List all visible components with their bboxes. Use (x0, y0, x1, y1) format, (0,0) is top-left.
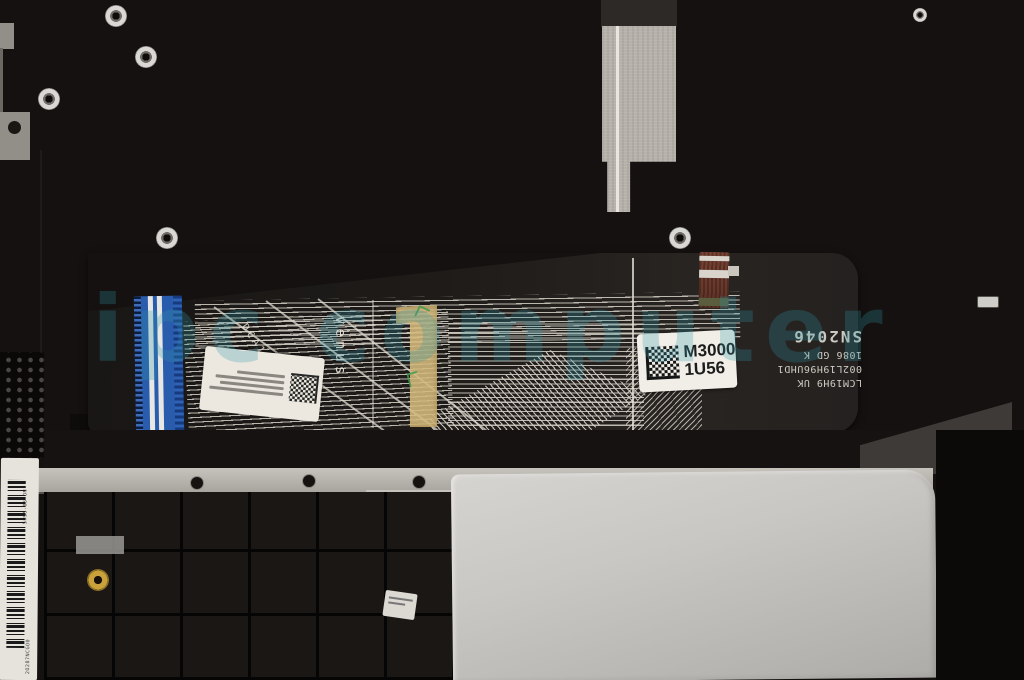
print-line: 1086 GD K (803, 349, 862, 360)
tape-shadow (601, 0, 677, 27)
ffc-white-band (699, 270, 729, 279)
rivet-eyelet-small (913, 8, 927, 22)
part-number-label: M3000 1U56 (637, 329, 738, 392)
touchpad-plate (451, 469, 937, 680)
bracket-rivet (412, 475, 426, 489)
serial-barcode-label: 5H95-05 ON 2O287NCGO0 (0, 458, 39, 680)
micro-label-textlines (205, 365, 287, 400)
part-revision: 1U56 (684, 358, 737, 379)
tiny-sticker (382, 590, 417, 620)
rivet-eyelet (156, 227, 178, 249)
rivet-eyelet (135, 46, 157, 68)
print-line: 002L19H96UHD1 (777, 363, 862, 374)
ffc-side-tab (728, 266, 739, 276)
edge-highlight (0, 48, 3, 114)
datamatrix-code-small (288, 373, 319, 404)
metal-clip (977, 296, 999, 308)
connector-stripe (157, 296, 164, 434)
ffc-connector-blue (134, 296, 184, 435)
datamatrix-code (645, 345, 680, 380)
barcode (6, 480, 25, 648)
product-photo: venus DCA1-2 LCM19H9 UK 002L19H96UHD1 10… (0, 0, 1024, 680)
foil-tape (602, 26, 676, 212)
connector-stripe (148, 296, 155, 434)
hinge-bracket-small (0, 23, 14, 49)
serial-label-bottom-text: 2O287NCGO0 (25, 598, 32, 674)
flex-fold-line (372, 300, 374, 428)
backlight-ffc-cable (699, 252, 730, 309)
print-line-date-code: SN2046 (792, 327, 862, 346)
rivet-eyelet (38, 88, 60, 110)
cable-brand-text: venus (332, 316, 348, 426)
micro-label (199, 346, 325, 422)
palmrest-band (44, 430, 944, 472)
ffc-white-band (699, 256, 729, 262)
bracket-rivet (302, 474, 316, 488)
ffc-contacts (699, 298, 729, 307)
speaker-mesh (0, 352, 44, 458)
right-dark-region (936, 430, 1024, 680)
flex-fold-line (632, 258, 634, 430)
rivet-eyelet (669, 227, 691, 249)
bracket-hole (8, 121, 21, 134)
cable-print-block: LCM19H9 UK 002L19H96UHD1 1086 GD K SN204… (726, 284, 862, 388)
rivet-eyelet (105, 5, 127, 27)
bracket-rivet (190, 476, 204, 490)
connector-contacts (134, 296, 143, 434)
screw-boss-gold (87, 569, 109, 591)
hinge-bracket-large (0, 112, 30, 160)
print-line: LCM19H9 UK (797, 377, 862, 388)
adhesive-patch (76, 536, 124, 554)
